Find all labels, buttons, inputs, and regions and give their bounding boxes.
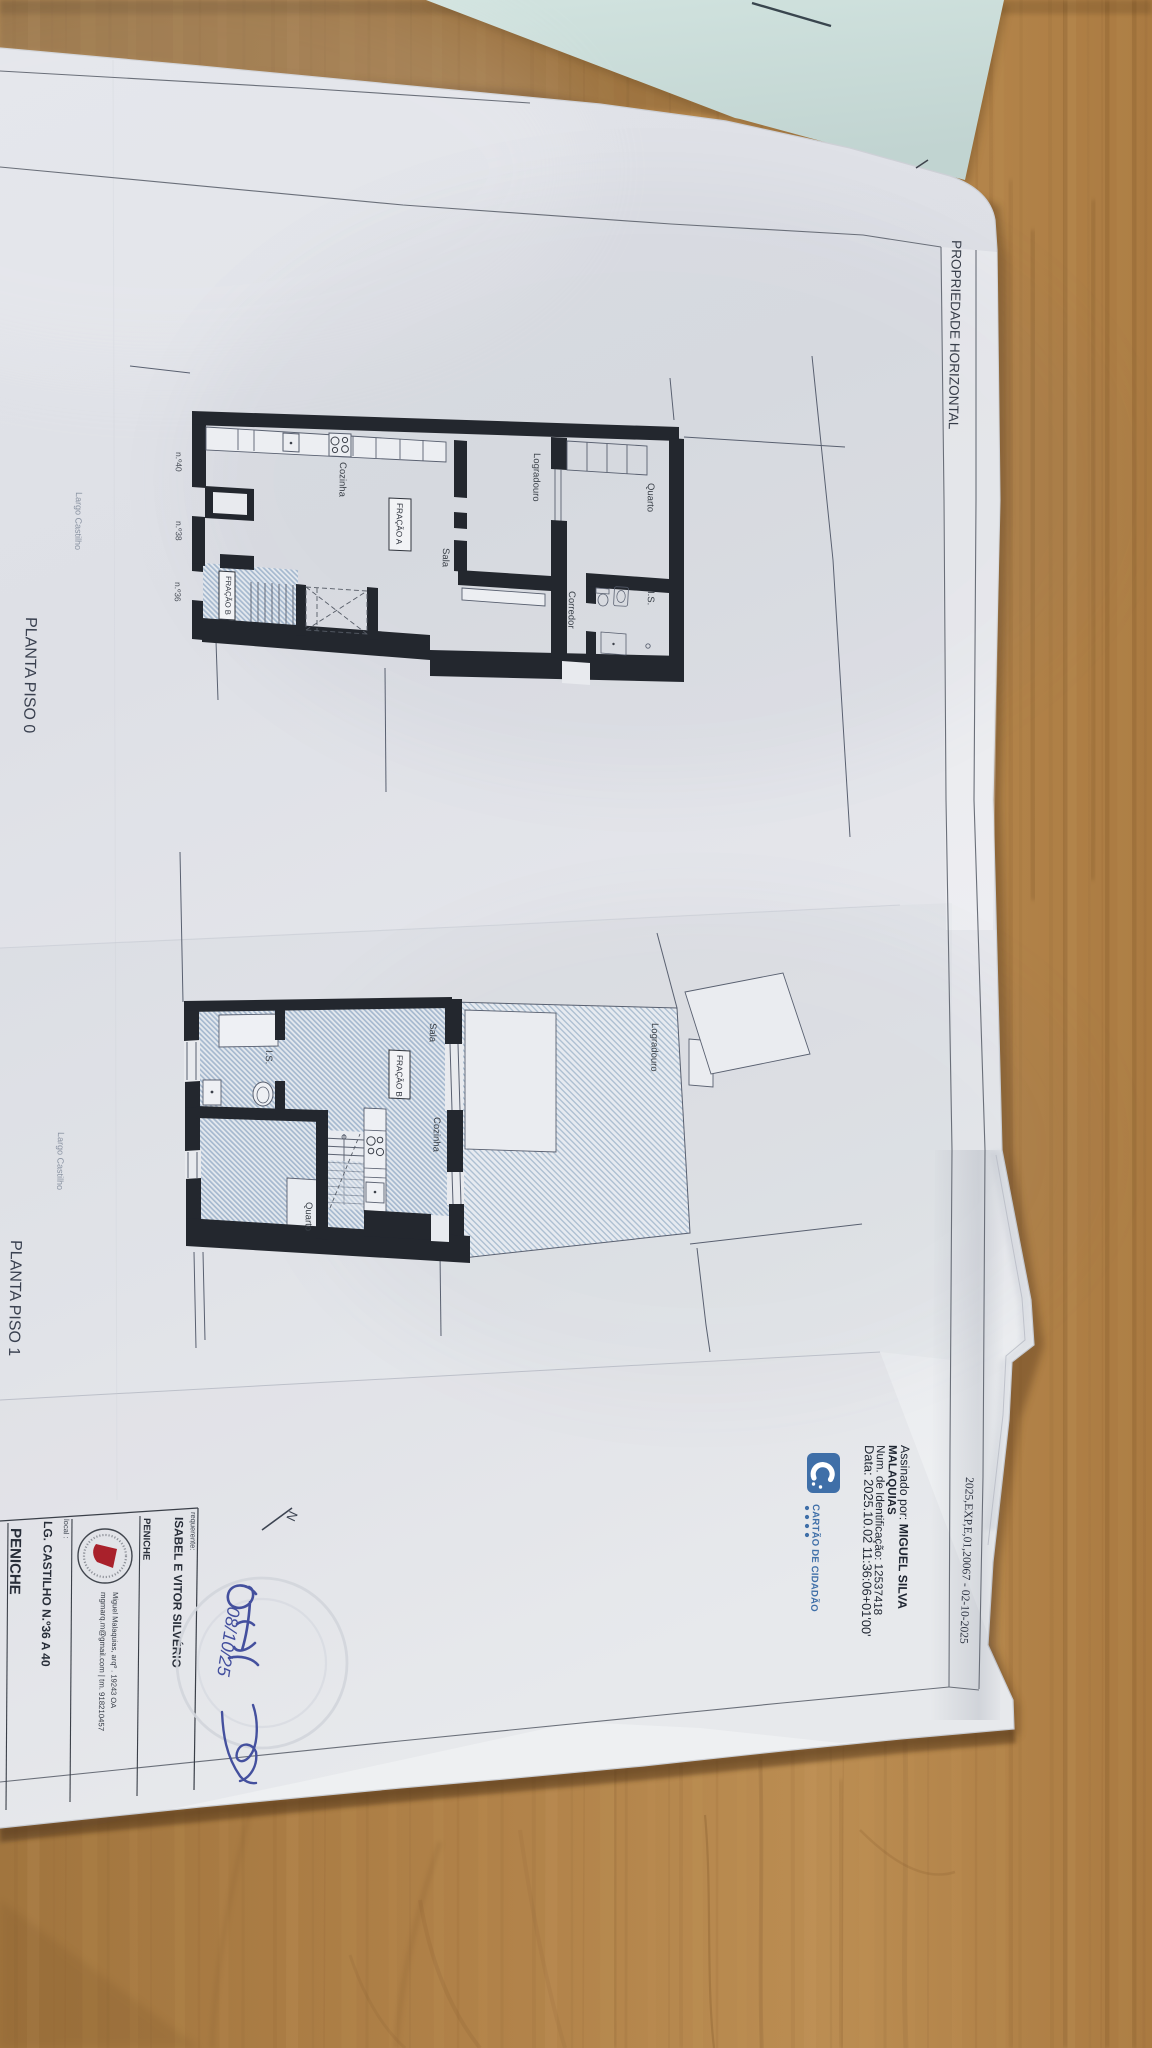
- svg-text:CARTÃO DE CIDADÃO: CARTÃO DE CIDADÃO: [808, 1504, 821, 1612]
- svg-text:PLANTA PISO 0: PLANTA PISO 0: [20, 617, 39, 734]
- svg-text:n.º40: n.º40: [174, 452, 184, 472]
- svg-text:I.S.: I.S.: [645, 591, 656, 605]
- svg-text:Cozinha: Cozinha: [430, 1117, 442, 1153]
- svg-text:LG. CASTILHO N.º36 A 40: LG. CASTILHO N.º36 A 40: [38, 1521, 55, 1667]
- svg-text:I.S.: I.S.: [263, 1050, 274, 1064]
- svg-text:Cozinha: Cozinha: [336, 462, 348, 498]
- svg-text:Largo Castilho: Largo Castilho: [55, 1132, 66, 1190]
- svg-text:PLANTA PISO 1: PLANTA PISO 1: [5, 1240, 24, 1357]
- svg-text:Quarto: Quarto: [644, 483, 656, 512]
- svg-text:Largo Castilho: Largo Castilho: [73, 492, 84, 550]
- svg-text:Logradouro: Logradouro: [648, 1023, 660, 1072]
- svg-text:Corredor: Corredor: [565, 591, 577, 629]
- svg-text:local :: local :: [62, 1519, 71, 1539]
- svg-text:n.º38: n.º38: [174, 521, 184, 541]
- svg-text:PENICHE: PENICHE: [140, 1518, 152, 1560]
- svg-text:Sala: Sala: [427, 1023, 438, 1043]
- svg-text:FRAÇÃO A: FRAÇÃO A: [394, 503, 405, 545]
- svg-text:Logradouro: Logradouro: [530, 453, 542, 502]
- svg-text:FRAÇÃO B: FRAÇÃO B: [223, 576, 233, 615]
- svg-text:n.º36: n.º36: [173, 582, 183, 602]
- svg-text:FRAÇÃO B: FRAÇÃO B: [394, 1055, 405, 1098]
- svg-text:Quarto: Quarto: [302, 1202, 314, 1231]
- svg-text:PENICHE: PENICHE: [6, 1528, 24, 1595]
- svg-text:requerente:: requerente:: [188, 1512, 198, 1551]
- svg-text:Sala: Sala: [440, 548, 451, 568]
